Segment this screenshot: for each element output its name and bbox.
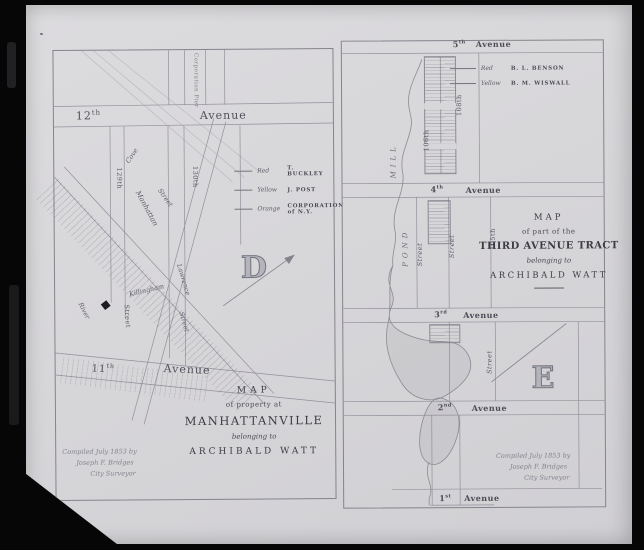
legend-row: Yellow B. M. WISWALL — [450, 75, 600, 91]
legend-color-label: Yellow — [257, 186, 287, 193]
right-map-legend: Red B. L. BENSON Yellow B. M. WISWALL — [450, 60, 600, 91]
legend-color-label: Red — [257, 167, 287, 174]
plate-letter-d: D — [241, 253, 267, 283]
plate-letter-e: E — [531, 364, 554, 394]
credit-role: City Surveyor — [90, 468, 137, 479]
legend-line-swatch — [234, 171, 252, 172]
title-place: MANHATTANVILLE — [174, 413, 334, 428]
street-129-label: 129th — [115, 167, 123, 189]
title-rule — [534, 288, 564, 289]
title-owner: ARCHIBALD WATT — [474, 270, 624, 281]
legend-owner-name: B. L. BENSON — [511, 65, 564, 71]
avenue-12-word: Avenue — [200, 109, 247, 122]
legend-color-label: Yellow — [481, 80, 511, 87]
avenue-11-word: Avenue — [163, 362, 210, 377]
title-of-line: of property at — [174, 400, 334, 409]
title-word-map: MAP — [474, 212, 624, 223]
legend-line-swatch — [450, 83, 476, 84]
street-130-label: 130th — [191, 166, 199, 188]
avenue-2-word: Avenue — [472, 403, 507, 413]
avenue-11-number: 11th — [91, 362, 115, 375]
scanner-bed-streak — [9, 285, 19, 425]
legend-color-label: Orange — [258, 205, 288, 212]
avenue-5-word: Avenue — [476, 39, 511, 49]
credit-role: City Surveyor — [524, 472, 571, 483]
title-belonging: belonging to — [474, 256, 624, 265]
left-map-title: MAP of property at MANHATTANVILLE belong… — [174, 385, 334, 457]
avenue-5-number: 5th — [453, 39, 466, 49]
avenue-3-word: Avenue — [463, 310, 498, 320]
avenue-12-number: 12th — [76, 109, 101, 123]
credit-surveyor: Joseph F. Bridges — [76, 457, 137, 468]
avenue-2-number: 2nd — [438, 402, 452, 412]
manhattanville-map-panel: Corporation Pier 12th Avenue Cove 129th … — [52, 48, 336, 501]
right-map-title: MAP of part of the THIRD AVENUE TRACT be… — [474, 212, 624, 289]
paper-speck — [40, 33, 43, 35]
credit-compiled: Compiled July 1853 by — [62, 446, 137, 458]
legend-row: Orange CORPORATION of N.Y. — [234, 199, 332, 219]
left-map-credit: Compiled July 1853 by Joseph F. Bridges … — [62, 446, 137, 480]
scanned-map-sheet: Corporation Pier 12th Avenue Cove 129th … — [0, 0, 644, 550]
paper: Corporation Pier 12th Avenue Cove 129th … — [26, 5, 632, 544]
credit-surveyor: Joseph F. Bridges — [510, 461, 571, 472]
legend-line-swatch — [235, 209, 253, 210]
street-gap — [424, 103, 456, 109]
legend-row: Red B. L. BENSON — [450, 60, 600, 76]
legend-owner-name: B. M. WISWALL — [511, 80, 570, 86]
mill-label: MILL — [389, 138, 397, 178]
corporation-pier-label: Corporation Pier — [192, 53, 198, 105]
title-owner: ARCHIBALD WATT — [174, 446, 334, 457]
avenue-1-word: Avenue — [464, 493, 499, 503]
city-block — [429, 324, 460, 343]
title-word-map: MAP — [174, 385, 334, 396]
street-word-label: Street — [448, 236, 456, 258]
legend-owner-name: T. BUCKLEY — [287, 165, 332, 177]
credit-compiled: Compiled July 1853 by — [496, 450, 571, 461]
street-108-label: 108th — [455, 94, 463, 116]
right-map-credit: Compiled July 1853 by Joseph F. Bridges … — [496, 450, 571, 483]
legend-line-swatch — [450, 68, 476, 69]
legend-row: Red T. BUCKLEY — [234, 161, 332, 181]
avenue-3-number: 3rd — [434, 309, 447, 319]
street-word-label: Street — [485, 352, 493, 374]
avenue-1-number: 1st — [439, 493, 451, 503]
legend-owner-name: J. POST — [287, 187, 316, 193]
third-avenue-tract-map-panel: 5th Avenue Red B. L. BENSON Yellow B. M.… — [341, 39, 606, 508]
left-map-legend: Red T. BUCKLEY Yellow J. POST Orange COR… — [234, 161, 332, 219]
scanner-bed-streak — [7, 42, 16, 88]
block-divider — [440, 57, 442, 173]
street-106-label: 106th — [422, 129, 430, 151]
legend-row: Yellow J. POST — [234, 180, 332, 200]
legend-color-label: Red — [481, 65, 511, 72]
avenue-4-number: 4th — [431, 184, 444, 194]
legend-owner-name: CORPORATION of N.Y. — [288, 202, 345, 214]
title-of-line: of part of the — [474, 227, 624, 236]
street-word-label: Street — [416, 244, 424, 266]
title-place: THIRD AVENUE TRACT — [474, 240, 624, 252]
avenue-4-word: Avenue — [466, 185, 501, 195]
legend-line-swatch — [234, 190, 252, 191]
pond-label: POND — [401, 226, 409, 267]
title-belonging: belonging to — [174, 432, 334, 441]
street-word-label: Street — [123, 304, 132, 326]
